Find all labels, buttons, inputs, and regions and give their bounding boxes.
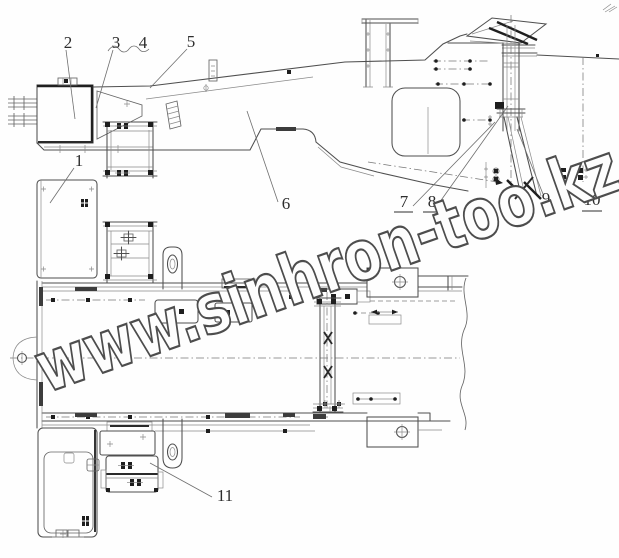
leader-3	[96, 50, 113, 108]
deck-plate	[97, 91, 142, 139]
left-plate	[37, 180, 97, 278]
bottom-left-plate	[38, 428, 99, 538]
dimension-rows	[433, 59, 492, 126]
callout-5: 5	[187, 32, 196, 51]
component-11	[101, 456, 163, 492]
rail-bracket	[204, 60, 291, 92]
rear-posts	[362, 19, 418, 87]
hatched-strip	[166, 101, 181, 129]
clevis-lug-bottom	[163, 419, 182, 468]
break-line	[460, 278, 467, 430]
plate-above-11	[100, 431, 155, 455]
engineering-drawing: 1 2 3 4 5 6 7 8 9 10 11 www.sinhron-too.…	[0, 0, 619, 558]
callout-3: 3	[112, 33, 121, 52]
cab-outline	[392, 88, 460, 156]
pipe-stubs	[8, 96, 37, 127]
plan-bottom-rail	[42, 393, 450, 447]
watermark-text: www.sinhron-too.kz	[24, 127, 619, 408]
top-platform	[467, 18, 546, 44]
callout-4: 4	[139, 33, 148, 52]
tank-box	[37, 78, 93, 143]
callout-1: 1	[75, 151, 84, 170]
nut-symbol	[121, 231, 136, 244]
leader-6	[247, 111, 278, 202]
leader-1	[50, 168, 74, 203]
callout-11: 11	[217, 486, 233, 505]
mid-component-plan	[103, 222, 157, 283]
callout-6: 6	[282, 194, 291, 213]
corner-mark	[603, 4, 617, 12]
callout-2: 2	[64, 33, 73, 52]
leader-11	[150, 463, 212, 497]
drawing-canvas: 1 2 3 4 5 6 7 8 9 10 11 www.sinhron-too.…	[0, 0, 619, 558]
